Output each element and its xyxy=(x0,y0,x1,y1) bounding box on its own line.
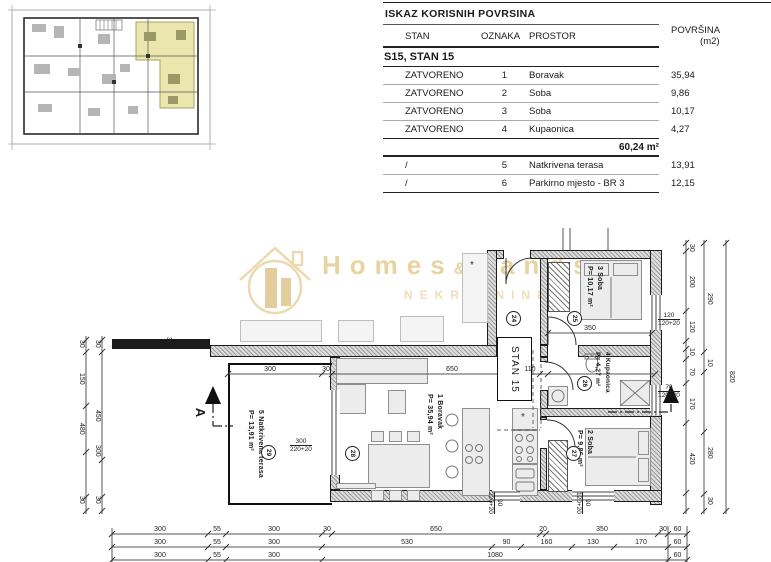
dim-bottom: 300 xyxy=(256,539,292,547)
dim-room3-width: 350 xyxy=(575,325,605,333)
dim-bottom: 300 xyxy=(142,552,178,560)
room-marker-soba2: 27 xyxy=(566,446,581,461)
dim-right: 170 xyxy=(687,391,695,417)
window-label: 90220+20 xyxy=(487,492,504,514)
window-label: 70120+20 xyxy=(658,384,680,399)
section-label: A xyxy=(193,408,208,417)
dim-bottom: 530 xyxy=(389,539,425,547)
dim-bottom: 160 xyxy=(529,539,565,547)
dim-right: 420 xyxy=(687,446,695,472)
dim-extra: 30 xyxy=(164,328,172,354)
room-marker-soba3: 25 xyxy=(567,311,582,326)
dim-right: 30 xyxy=(687,235,695,261)
dim-bottom: 60 xyxy=(660,539,696,547)
dim-bottom: 30 xyxy=(309,526,345,534)
dim-bottom: 90 xyxy=(489,539,525,547)
dim-right: 10 xyxy=(705,350,713,376)
dim-left: 30 xyxy=(77,487,85,513)
window-label: 300220+20 xyxy=(290,438,312,453)
dim-bottom: 300 xyxy=(256,526,292,534)
dim-bottom: 300 xyxy=(142,526,178,534)
room-marker-terasa: 29 xyxy=(261,445,276,460)
dim-right: 200 xyxy=(687,269,695,295)
section-arrow-left xyxy=(205,386,221,404)
dim-right: 290 xyxy=(705,286,713,312)
dim-left: 30 xyxy=(77,331,85,357)
room-marker-boravak: 28 xyxy=(345,446,360,461)
dim-bottom: 60 xyxy=(660,526,696,534)
dim-left: 450 xyxy=(93,403,101,429)
dim-left: 30 xyxy=(93,331,101,357)
dim-interior: 650 xyxy=(437,366,467,374)
dim-bottom: 300 xyxy=(256,552,292,560)
hall-marker: 24 xyxy=(506,311,521,326)
dim-right: 30 xyxy=(705,488,713,514)
dim-interior: 300 xyxy=(255,366,285,374)
dim-interior: 110 xyxy=(515,366,545,374)
dim-bottom: 55 xyxy=(199,552,235,560)
dim-left: 30 xyxy=(93,487,101,513)
fixture-asterisk: * xyxy=(470,260,474,271)
dim-interior: 30 xyxy=(311,366,341,374)
dim-left: 480 xyxy=(77,416,85,442)
dim-bottom: 350 xyxy=(584,526,620,534)
dim-bottom: 55 xyxy=(199,539,235,547)
dim-bottom: 60 xyxy=(660,552,696,560)
dim-left: 150 xyxy=(77,366,85,392)
dim-right: 120 xyxy=(687,314,695,340)
dim-bottom: 170 xyxy=(623,539,659,547)
fixture-asterisk: * xyxy=(521,412,525,423)
dim-right: 70 xyxy=(687,359,695,385)
dim-bottom: 1080 xyxy=(477,552,513,560)
room-label-kupaonica: 4 KupaonicaP= 4,27 m² xyxy=(592,352,612,410)
room-label-boravak: 1 BoravakP= 35,94 m² xyxy=(424,394,444,490)
floor-plan-page: ISKAZ KORISNIH POVRSINA STAN OZNAKA PROS… xyxy=(0,0,771,562)
window-label: 120120+20 xyxy=(658,312,680,327)
dim-bottom: 130 xyxy=(575,539,611,547)
dim-bottom: 55 xyxy=(199,526,235,534)
dim-left: 300 xyxy=(93,438,101,464)
dim-bottom: 20 xyxy=(525,526,561,534)
window-label: 90120+20 xyxy=(575,492,592,514)
dim-bottom: 300 xyxy=(142,539,178,547)
plan-linework xyxy=(0,0,771,562)
dim-bottom: 650 xyxy=(418,526,454,534)
dim-right: 280 xyxy=(705,440,713,466)
room-marker-kupaonica: 26 xyxy=(577,376,592,391)
dim-right: 820 xyxy=(727,364,735,390)
